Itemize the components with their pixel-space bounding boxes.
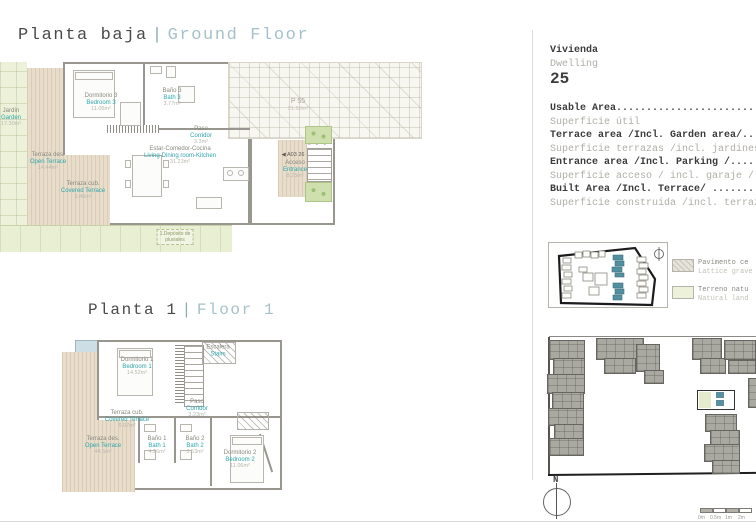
- building-block: [700, 358, 726, 374]
- garden-area: [0, 62, 27, 232]
- legend-label-natural: Terreno natu Natural land: [698, 286, 748, 304]
- footnote-line2: pluviales: [165, 237, 184, 243]
- ground-floor-title-en: Ground Floor: [168, 26, 310, 45]
- compass-needle: [556, 483, 557, 519]
- chair: [163, 180, 169, 188]
- title-separator: |: [178, 301, 197, 319]
- building-block: [547, 374, 585, 394]
- area-row-en: Usable Area.............................…: [550, 102, 756, 116]
- room-label-corridor: Paso Corridor 3.3m²: [190, 126, 212, 146]
- kitchen-sink: [227, 170, 233, 176]
- legend-swatch-natural: [672, 286, 694, 299]
- room-label-bath3: Baño 3 Bath 3 3.77m²: [162, 88, 181, 108]
- legend-swatch-lattice: [672, 259, 694, 272]
- scale-label: 2m: [738, 515, 745, 521]
- room-label-open-terrace: Terraza des. Open Terrace 14.44m²: [30, 152, 66, 172]
- area-row-es: Superficie acceso / incl. garaje /: [550, 170, 756, 184]
- page-edge-line: [0, 521, 756, 522]
- rainwater-tank-note: 1.Depósito de pluviales: [157, 229, 194, 245]
- natural-terrain-strip: [0, 225, 232, 252]
- compass-icon: [543, 488, 571, 516]
- area-row-es: Superficie construida /incl. terraza/: [550, 197, 756, 211]
- bedroom3-wall: [143, 62, 145, 128]
- building-block: [712, 460, 740, 474]
- room-label-garden: Jardín Garden 17.30m²: [1, 108, 21, 128]
- building-block: [724, 340, 756, 360]
- site-key-map-graphic: [549, 243, 669, 309]
- open-terrace-strip: [62, 352, 97, 422]
- open-terrace-area: [27, 68, 65, 225]
- bedroom2-wall: [210, 418, 212, 486]
- floor1-plan: Dormitorio 1 Bedroom 1 14.52m² Escalera …: [62, 338, 362, 496]
- bath-divider-wall: [174, 418, 176, 463]
- area-row-en: Terrace area /Incl. Garden area/........…: [550, 129, 756, 143]
- ground-floor-title: Planta baja|Ground Floor: [18, 26, 309, 45]
- area-table: Usable Area.............................…: [550, 102, 756, 210]
- building-block: [748, 378, 756, 408]
- floor1-title-es: Planta 1: [88, 301, 178, 319]
- room-label-bedroom3: Dormitorio 3 Bedroom 3 11.05m²: [85, 93, 118, 113]
- building-block: [728, 360, 756, 374]
- floor1-title-en: Floor 1: [197, 301, 275, 319]
- entrance-steps: [307, 148, 332, 182]
- dwelling-number: 25: [550, 71, 756, 87]
- pillow-bedroom2: [232, 437, 262, 445]
- area-row-en: Entrance area /Incl. Parking /..........…: [550, 156, 756, 170]
- parking-label: P 55 21.58m²: [288, 98, 308, 112]
- louver-screen: [175, 345, 184, 405]
- area-row-es: Superficie terrazas /incl. jardines/: [550, 143, 756, 157]
- chair: [125, 180, 131, 188]
- room-label-corridor: Paso Corridor 3.23m²: [186, 399, 208, 419]
- sofa: [196, 197, 222, 209]
- building-block: [549, 340, 585, 360]
- room-label-living: Estar-Comedor-Cocina Living-Dining room-…: [144, 146, 216, 166]
- site-boundary-top: [549, 336, 756, 337]
- pillow-bedroom3: [75, 72, 113, 80]
- scale-label: 1m: [725, 515, 732, 521]
- staircase: [184, 345, 204, 407]
- building-block: [644, 370, 664, 384]
- floor1-title: Planta 1|Floor 1: [88, 301, 275, 319]
- building-block: [692, 338, 722, 360]
- site-key-map: [548, 242, 668, 308]
- area-row-en: Built Area /Incl. Terrace/ .............…: [550, 183, 756, 197]
- scale-label: 0m: [698, 515, 705, 521]
- room-label-covered-terrace: Terraza cub. Covered Terrace 6.07m²: [105, 410, 149, 430]
- building-block: [549, 438, 584, 456]
- room-label-entrance: Acceso Entrance 8.25m²: [283, 160, 307, 180]
- unit-tag: ◀ A03 26: [282, 152, 305, 158]
- room-label-stairs: Escalera Stairs: [206, 344, 229, 357]
- room-label-bath2: Baño 2 Bath 2 3.53m²: [185, 436, 204, 456]
- planter: [305, 126, 332, 144]
- highlighted-dwelling-room: [716, 400, 724, 406]
- mini-compass-icon: [655, 247, 664, 261]
- ground-floor-title-es: Planta baja: [18, 26, 148, 45]
- louver-window: [107, 125, 159, 133]
- sidebar: Vivienda Dwelling 25: [550, 44, 756, 87]
- chair: [125, 160, 131, 168]
- open-terrace-block: [62, 420, 135, 492]
- area-row-es: Superficie útil: [550, 116, 756, 130]
- scale-label: 0.5m: [710, 515, 721, 521]
- planter: [305, 182, 332, 202]
- dwelling-label-es: Vivienda: [550, 44, 756, 58]
- room-label-bedroom2: Dormitorio 2 Bedroom 2 11.06m²: [224, 450, 257, 470]
- building-block: [636, 344, 660, 372]
- scale-bar: [700, 508, 752, 513]
- legend-label-lattice: Pavimento ce Lattice grave: [698, 259, 753, 277]
- sink-bath2: [180, 424, 192, 432]
- highlighted-dwelling-garden: [699, 392, 711, 408]
- room-label-open-terrace: Terraza des. Open Terrace 44.5m²: [85, 436, 121, 456]
- wardrobe-hatch: [237, 412, 269, 430]
- kitchen-sink: [238, 170, 244, 176]
- dwelling-label-en: Dwelling: [550, 58, 756, 72]
- sink-bath3: [150, 66, 162, 74]
- ground-floor-plan: 3 2 1 1.Depósito de pluviales Jardín Gar…: [0, 60, 430, 255]
- building-block: [604, 358, 636, 374]
- vertical-divider: [532, 30, 533, 480]
- room-label-bath1: Baño 1 Bath 1 4.26m²: [147, 436, 166, 456]
- site-plan: [540, 334, 756, 480]
- room-label-bedroom1: Dormitorio 1 Bedroom 1 14.52m²: [121, 357, 154, 377]
- title-separator: |: [148, 26, 168, 45]
- highlighted-dwelling-room: [716, 392, 724, 398]
- wardrobe-bedroom3: [120, 102, 141, 126]
- brochure-page: { "titles": { "ground_es": "Planta baja"…: [0, 0, 756, 528]
- room-label-covered-terrace: Terraza cub. Covered Terrace 3.46m²: [61, 181, 105, 201]
- toilet-bath3: [166, 66, 176, 78]
